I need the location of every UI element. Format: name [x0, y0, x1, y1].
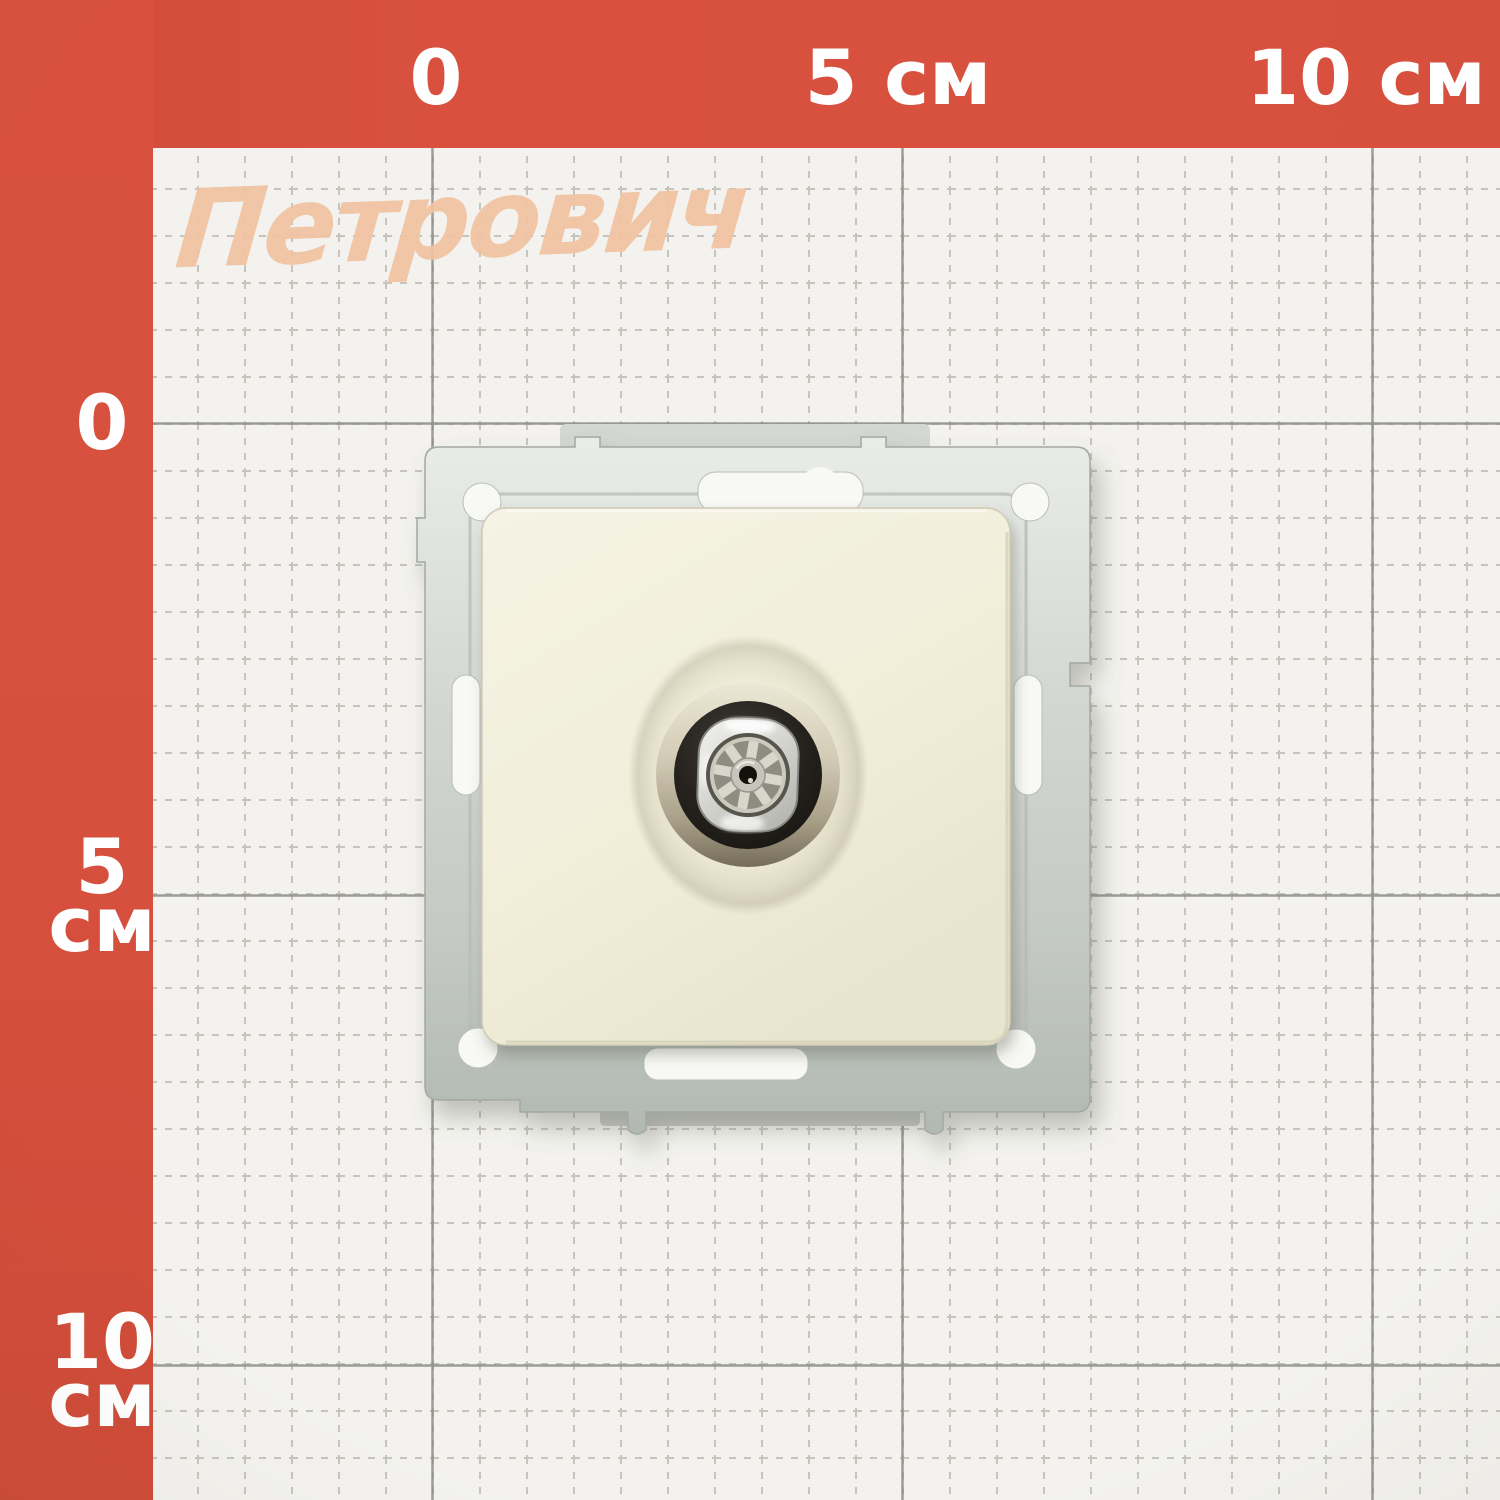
cutout-hole-top-right — [1011, 483, 1049, 521]
ruler-band-left — [0, 0, 153, 1500]
cutout-capsule-left — [452, 675, 480, 795]
ruler-left-label-0-number: 0 — [76, 394, 129, 452]
ruler-left-label-10cm: 10 см — [48, 1313, 155, 1429]
cutout-arch-top-bulge — [800, 467, 840, 507]
ruler-left-label-5-unit: см — [48, 896, 155, 954]
tv-socket-product — [340, 390, 1180, 1210]
ruler-top-label-10cm: 10 см — [1246, 36, 1485, 120]
product-photo-scene: Петрович — [0, 0, 1500, 1500]
ruler-left-label-5cm: 5 см — [48, 838, 155, 954]
ruler-top-label-0: 0 — [410, 36, 463, 120]
tv-connector — [628, 635, 868, 915]
ruler-top-label-5cm: 5 см — [805, 36, 992, 120]
cutout-capsule-right — [1014, 675, 1042, 795]
center-pin-tip — [748, 778, 753, 783]
cutout-arch-bottom — [644, 1048, 808, 1080]
center-pin-hole — [739, 766, 757, 784]
ruler-left-label-10-unit: см — [48, 1371, 155, 1429]
petrovich-watermark: Петрович — [171, 147, 782, 293]
ruler-left-label-0: 0 — [76, 394, 129, 452]
